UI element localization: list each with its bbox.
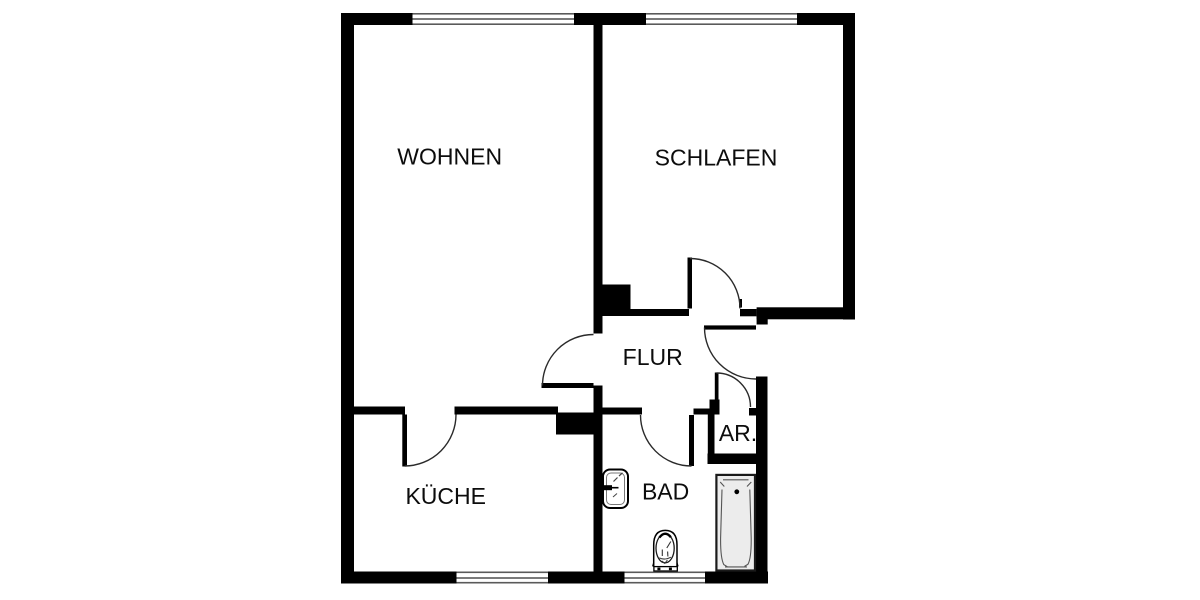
- svg-text:AR.: AR.: [719, 420, 757, 446]
- svg-text:KÜCHE: KÜCHE: [405, 483, 486, 509]
- svg-text:BAD: BAD: [642, 479, 689, 505]
- svg-text:FLUR: FLUR: [623, 344, 683, 370]
- svg-text:SCHLAFEN: SCHLAFEN: [655, 144, 778, 170]
- svg-text:WOHNEN: WOHNEN: [397, 143, 502, 169]
